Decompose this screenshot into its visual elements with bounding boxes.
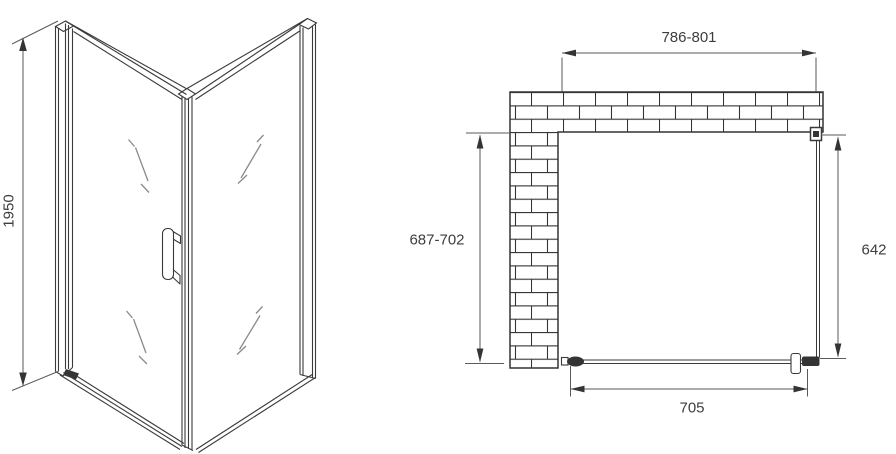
extension-lines xyxy=(465,133,509,364)
arrowhead-down-icon xyxy=(477,349,484,363)
extension-lines xyxy=(562,58,816,92)
top-width-dimension-label: 786-801 xyxy=(661,29,716,46)
corner-post-top-cap xyxy=(179,89,196,100)
height-dimension-label: 1950 xyxy=(1,194,18,227)
corner-connector xyxy=(802,357,820,367)
right-post-top-cap xyxy=(299,19,317,30)
left-wall-profile xyxy=(56,21,80,380)
glass-panel-dimension-label: 642 xyxy=(861,242,886,259)
bottom-rail-left-panel xyxy=(60,370,184,450)
door-width-dimension-label: 705 xyxy=(679,400,704,417)
arrowhead-left-icon xyxy=(571,386,585,393)
front-view: 1950 xyxy=(1,19,317,453)
right-side-post xyxy=(299,19,317,379)
dimension-height: 1950 xyxy=(1,21,59,391)
door-assembly xyxy=(562,354,820,374)
dimension-top-width: 786-801 xyxy=(562,29,816,92)
reflection-mark-left-upper xyxy=(129,140,150,193)
door-handle-plan xyxy=(791,354,801,374)
arrowhead-right-icon xyxy=(794,386,808,393)
door-glass-line xyxy=(583,360,802,364)
plan-view: 786-801 687-702 642 705 xyxy=(409,29,886,417)
dimension-door-width: 705 xyxy=(571,366,808,417)
extension-lines xyxy=(571,366,808,397)
extension-line-bottom xyxy=(12,372,58,391)
technical-drawing-page: 1950 786-801 xyxy=(0,0,896,454)
shower-enclosure-drawing: 1950 786-801 xyxy=(0,0,896,454)
arrowhead-down-icon xyxy=(19,373,27,387)
extension-lines xyxy=(820,135,846,359)
handle-bar xyxy=(163,229,174,280)
glass-side-panel xyxy=(817,141,820,358)
dimension-glass-panel: 642 xyxy=(820,135,887,359)
wall-bracket xyxy=(811,128,822,141)
handle-top-mount xyxy=(173,232,181,244)
reflection-mark-right-lower xyxy=(237,307,263,355)
top-rail-left-panel xyxy=(66,21,188,100)
door-handle xyxy=(163,229,181,285)
bottom-rail-right-panel xyxy=(196,374,316,453)
arrowhead-down-icon xyxy=(835,344,842,358)
arrowhead-up-icon xyxy=(477,135,484,149)
brick-wall xyxy=(510,92,823,368)
reflection-mark-left-lower xyxy=(127,311,148,364)
wall-depth-dimension-label: 687-702 xyxy=(409,232,464,249)
glass-reflection-marks xyxy=(127,135,264,364)
arrowhead-right-icon xyxy=(802,50,816,57)
corner-post xyxy=(179,89,196,451)
top-rail-right-panel xyxy=(187,19,308,100)
arrowhead-up-icon xyxy=(835,137,842,151)
door-hinge xyxy=(567,357,584,367)
arrowhead-left-icon xyxy=(562,50,576,57)
reflection-mark-right-upper xyxy=(238,135,264,184)
dimension-wall-depth: 687-702 xyxy=(409,133,509,364)
extension-line-top xyxy=(12,21,58,44)
